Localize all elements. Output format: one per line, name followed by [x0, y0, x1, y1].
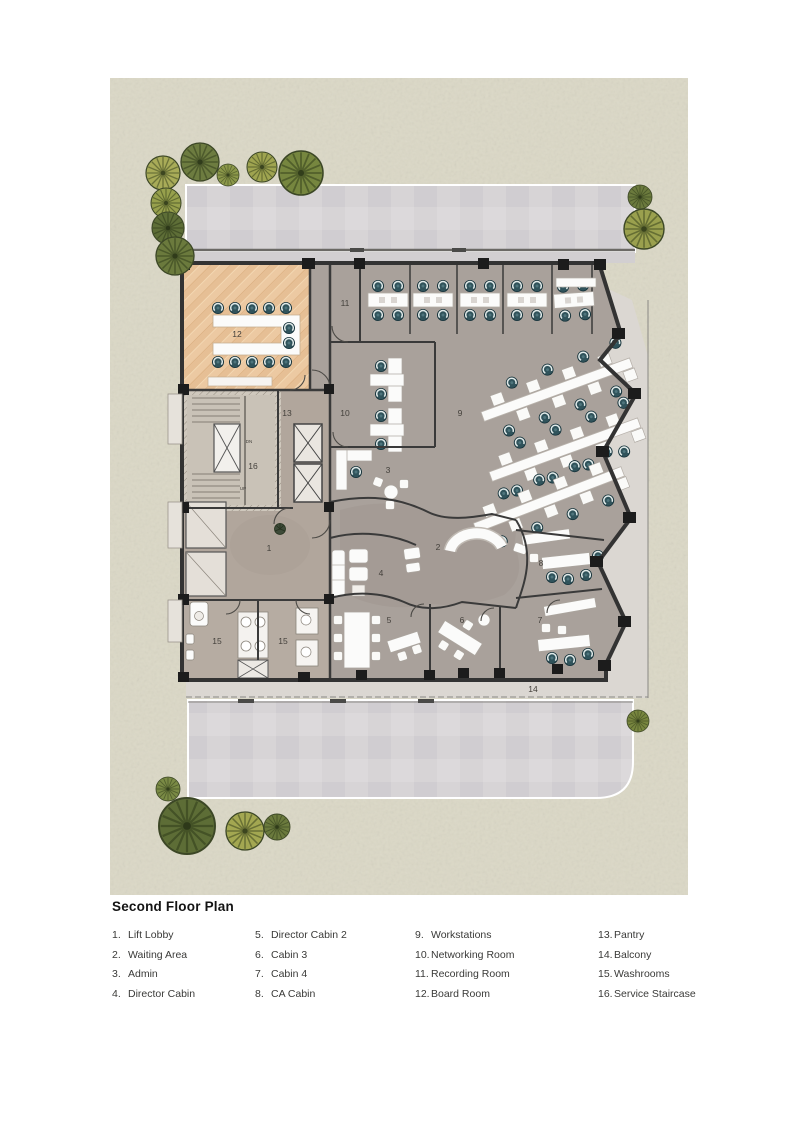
- left-ledges: [168, 394, 182, 642]
- stair-up-label: UP: [240, 486, 246, 491]
- legend-item: 15.Washrooms: [598, 969, 718, 980]
- tree-icon: [264, 814, 290, 840]
- legend-column-1: 1.Lift Lobby 2.Waiting Area 3.Admin 4.Di…: [112, 930, 255, 1000]
- room-number-8: 8: [539, 558, 544, 568]
- tree-icon: [156, 237, 194, 275]
- legend-item: 9.Workstations: [415, 930, 598, 941]
- room-washrooms: [184, 600, 330, 680]
- room-number-6: 6: [460, 615, 465, 625]
- room-number-3: 3: [386, 465, 391, 475]
- room-number-16: 16: [248, 461, 258, 471]
- legend-grid: 1.Lift Lobby 2.Waiting Area 3.Admin 4.Di…: [112, 930, 718, 1000]
- room-number-15-left: 15: [212, 636, 222, 646]
- legend: Second Floor Plan 1.Lift Lobby 2.Waiting…: [112, 899, 718, 1000]
- room-board-room: [184, 265, 310, 390]
- legend-item: 13.Pantry: [598, 930, 718, 941]
- legend-item: 4.Director Cabin: [112, 989, 255, 1000]
- room-number-12: 12: [232, 329, 242, 339]
- tree-icon: [226, 812, 264, 850]
- room-number-13: 13: [282, 408, 292, 418]
- tree-icon: [217, 164, 239, 186]
- room-number-4: 4: [379, 568, 384, 578]
- tree-icon: [247, 152, 277, 182]
- room-number-1: 1: [267, 543, 272, 553]
- tree-icon: [627, 710, 649, 732]
- legend-column-2: 5.Director Cabin 2 6.Cabin 3 7.Cabin 4 8…: [255, 930, 415, 1000]
- room-number-7: 7: [538, 615, 543, 625]
- tree-icon: [624, 209, 664, 249]
- legend-item: 1.Lift Lobby: [112, 930, 255, 941]
- legend-item: 6.Cabin 3: [255, 950, 415, 961]
- tree-icon: [628, 185, 652, 209]
- legend-item: 2.Waiting Area: [112, 950, 255, 961]
- paved-driveway-top: [184, 185, 635, 263]
- tree-icon: [156, 777, 180, 801]
- legend-item: 11.Recording Room: [415, 969, 598, 980]
- room-number-2: 2: [436, 542, 441, 552]
- legend-item: 3.Admin: [112, 969, 255, 980]
- stair-dn-label: DN: [246, 439, 253, 444]
- tree-icon: [181, 143, 219, 181]
- legend-item: 10.Networking Room: [415, 950, 598, 961]
- legend-item: 12.Board Room: [415, 989, 598, 1000]
- room-service-staircase: [184, 392, 278, 508]
- tree-icon: [146, 156, 180, 190]
- room-number-11: 11: [341, 298, 350, 308]
- page: 1 2 3 4 5 6 7 8 9 10 11 12 13 14 15 15 1…: [0, 0, 800, 1132]
- legend-item: 7.Cabin 4: [255, 969, 415, 980]
- legend-item: 5.Director Cabin 2: [255, 930, 415, 941]
- room-number-14: 14: [528, 684, 538, 694]
- room-number-15-right: 15: [278, 636, 288, 646]
- legend-item: 16.Service Staircase: [598, 989, 718, 1000]
- plan-title: Second Floor Plan: [112, 899, 718, 914]
- legend-item: 14.Balcony: [598, 950, 718, 961]
- room-number-10: 10: [340, 408, 350, 418]
- building: [168, 258, 650, 682]
- room-number-5: 5: [387, 615, 392, 625]
- legend-column-4: 13.Pantry 14.Balcony 15.Washrooms 16.Ser…: [598, 930, 718, 1000]
- tree-icon: [159, 798, 215, 854]
- legend-item: 8.CA Cabin: [255, 989, 415, 1000]
- room-number-9: 9: [458, 408, 463, 418]
- legend-column-3: 9.Workstations 10.Networking Room 11.Rec…: [415, 930, 598, 1000]
- paved-driveway-bottom: [188, 699, 633, 798]
- tree-icon: [279, 151, 323, 195]
